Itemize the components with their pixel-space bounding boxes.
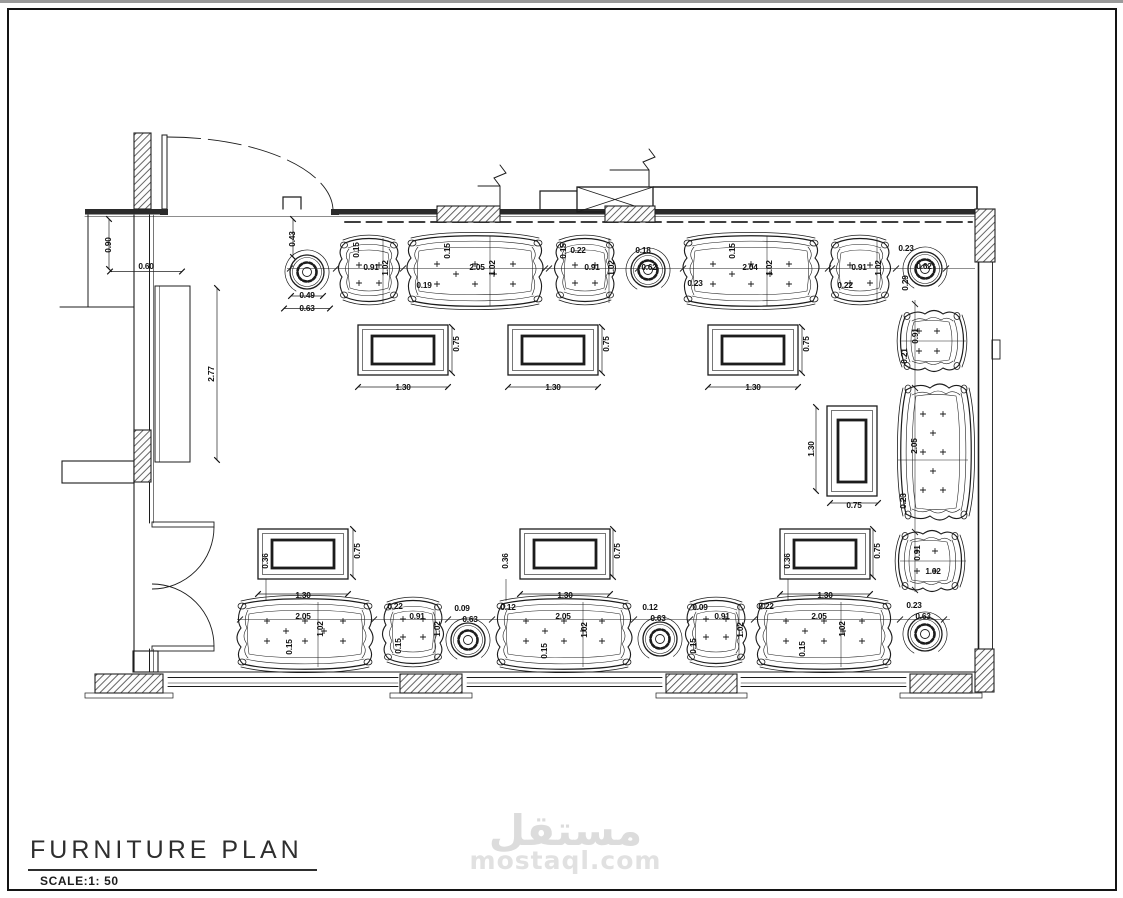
top-wall: [333, 209, 995, 215]
closet-recess: [155, 286, 190, 462]
column-pier: [134, 133, 151, 209]
dimension-label: 0.63: [299, 303, 315, 313]
dimension-label: 0.22: [837, 280, 853, 290]
dimension-label: 0.75: [352, 543, 362, 559]
dimension-label: 1.02: [487, 260, 497, 276]
dimension-label: 0.91: [910, 328, 920, 344]
dimension-label: 0.23: [898, 493, 908, 509]
dimension-label: 0.36: [500, 553, 510, 569]
coffee-table: [258, 529, 348, 579]
column-pier: [437, 206, 500, 222]
dimension-label: 0.75: [846, 500, 862, 510]
window-pier: [666, 674, 737, 693]
dimension-label: 1.02: [764, 260, 774, 276]
dimension-label: 0.63: [650, 613, 666, 623]
dimension-label: 0.36: [260, 553, 270, 569]
dimension-label: 0.22: [387, 601, 403, 611]
top-wall-left: [85, 209, 163, 215]
furniture-plan-canvas: 0.900.602.770.430.490.630.150.911.020.19…: [0, 0, 1123, 898]
dimension-label: 0.91: [714, 611, 730, 621]
dimension-label: 2.05: [295, 611, 311, 621]
door-jamb-box: [133, 651, 158, 672]
dimension-label: 1.30: [817, 590, 833, 600]
coffee-table: [520, 529, 610, 579]
doors-layer: [152, 135, 339, 651]
window-pier: [95, 674, 163, 693]
door-leaf: [152, 522, 214, 527]
dimension-label: 0.91: [363, 262, 379, 272]
dimension-label: 0.09: [692, 602, 708, 612]
window-pier: [400, 674, 462, 693]
dimension-label: 0.75: [601, 336, 611, 352]
dimension-label: 0.43: [287, 231, 297, 247]
dimension-label: 1.02: [432, 621, 442, 637]
wall-molding: [85, 693, 982, 698]
dimension-label: 0.91: [851, 262, 867, 272]
dimension-label: 0.36: [782, 553, 792, 569]
dimension-label: 0.15: [797, 641, 807, 657]
sofa: [496, 595, 632, 672]
wall-notch: [283, 197, 301, 209]
dimension-label: 1.30: [745, 382, 761, 392]
dimension-label: 1.02: [735, 622, 745, 638]
dimension-label: 1.30: [295, 590, 311, 600]
dimension-label: 0.15: [727, 243, 737, 259]
dimension-label: 0.91: [409, 611, 425, 621]
dimension-label: 0.23: [898, 243, 914, 253]
dimension-label: 2.05: [811, 611, 827, 621]
dimension-label: 1.02: [315, 621, 325, 637]
corner-column: [975, 649, 994, 692]
dimension-label: 1.30: [395, 382, 411, 392]
dimension-label: 0.90: [103, 237, 113, 253]
door-swing-arc: [152, 527, 214, 589]
sofa: [756, 595, 892, 672]
dimension-label: 2.04: [742, 262, 758, 272]
dimension-label: 0.60: [138, 261, 154, 271]
dimension-label: 1.02: [873, 260, 883, 276]
dimension-label: 0.75: [872, 543, 882, 559]
dimension-label: 1.30: [806, 441, 816, 457]
dimension-label: 0.15: [284, 639, 294, 655]
dimension-label: 0.63: [915, 611, 931, 621]
door-swing-arc: [152, 584, 214, 646]
dimension-label: 0.49: [299, 290, 315, 300]
sofa: [237, 595, 373, 672]
dimension-label: 0.15: [442, 243, 452, 259]
dimension-label: 0.63: [462, 614, 478, 624]
title-block: FURNITURE PLAN SCALE:1: 50: [28, 836, 317, 888]
dimension-label: 0.21: [899, 348, 909, 364]
dimension-label: 1.30: [545, 382, 561, 392]
dimension-label: 0.62: [641, 262, 657, 272]
dimension-label: 0.29: [900, 275, 910, 291]
coffee-table: [508, 325, 598, 375]
wall-notch: [992, 340, 1000, 359]
dimension-label: 0.09: [454, 603, 470, 613]
corner-column: [975, 209, 995, 262]
dimension-label: 1.02: [380, 260, 390, 276]
dimension-label: 0.75: [612, 543, 622, 559]
dimension-label: 0.75: [801, 336, 811, 352]
dimension-label: 0.91: [912, 545, 922, 561]
door-leaf: [152, 646, 214, 651]
dimension-label: 0.12: [500, 602, 516, 612]
drawing-title: FURNITURE PLAN: [28, 836, 317, 871]
dimension-label: 1.02: [837, 621, 847, 637]
furniture-layer: [237, 232, 975, 672]
window-pier: [910, 674, 972, 693]
dimension-label: 0.15: [558, 243, 568, 259]
dimension-label: 1.02: [579, 622, 589, 638]
dimension-label: 0.15: [539, 643, 549, 659]
dimension-label: 2.05: [469, 262, 485, 272]
dimension-label: 2.05: [909, 438, 919, 454]
dimension-label: 0.23: [687, 278, 703, 288]
dimension-label: 2.77: [206, 366, 216, 382]
window-glazing: [168, 678, 906, 687]
break-symbol: [478, 149, 655, 209]
door-swing-arc: [167, 137, 333, 209]
dimension-label: 0.75: [451, 336, 461, 352]
column-pier: [605, 206, 655, 222]
dimension-label: 1.30: [557, 590, 573, 600]
dimension-label: 0.18: [635, 245, 651, 255]
dimension-label: 1.02: [925, 566, 941, 576]
coffee-table: [827, 406, 877, 496]
dimension-label: 2.05: [555, 611, 571, 621]
wall-projection: [62, 461, 134, 483]
dimension-label: 0.22: [758, 601, 774, 611]
dimension-label: 0.23: [906, 600, 922, 610]
dimension-label: 0.12: [642, 602, 658, 612]
drawing-scale: SCALE:1: 50: [40, 874, 317, 888]
coffee-table: [358, 325, 448, 375]
dimension-label: 0.91: [584, 262, 600, 272]
dimension-label: 0.62: [916, 261, 932, 271]
door-leaf: [162, 135, 167, 209]
column-pier: [134, 430, 151, 482]
dimension-label: 0.15: [351, 242, 361, 258]
coffee-table: [780, 529, 870, 579]
dimension-label: 0.15: [688, 638, 698, 654]
walls-layer: [60, 149, 1000, 698]
dimension-label: 0.15: [393, 638, 403, 654]
dimension-label: 0.22: [570, 245, 586, 255]
dimension-label: 0.19: [416, 280, 432, 290]
coffee-table: [708, 325, 798, 375]
drawing-sheet: 0.900.602.770.430.490.630.150.911.020.19…: [0, 0, 1123, 898]
dimension-label: 1.02: [606, 260, 616, 276]
